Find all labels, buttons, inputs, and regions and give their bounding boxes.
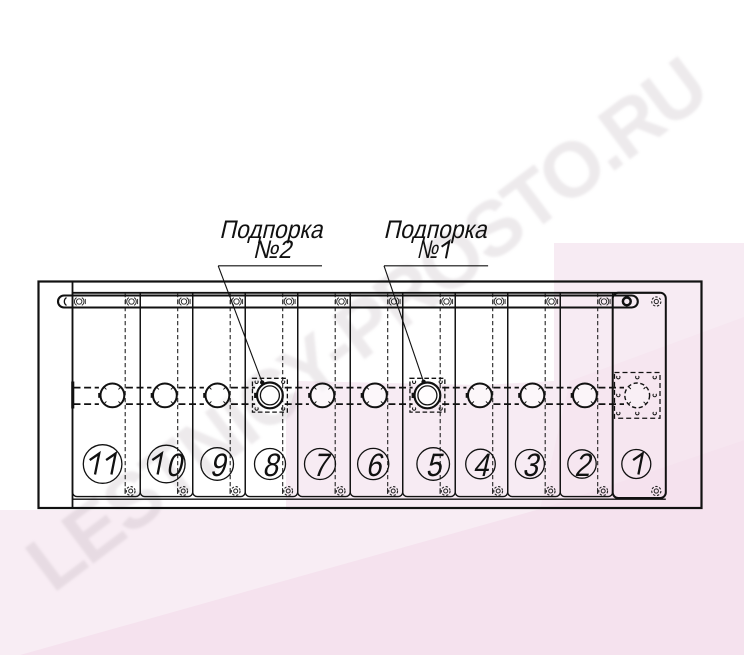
svg-text:№2: №2 (251, 236, 296, 264)
